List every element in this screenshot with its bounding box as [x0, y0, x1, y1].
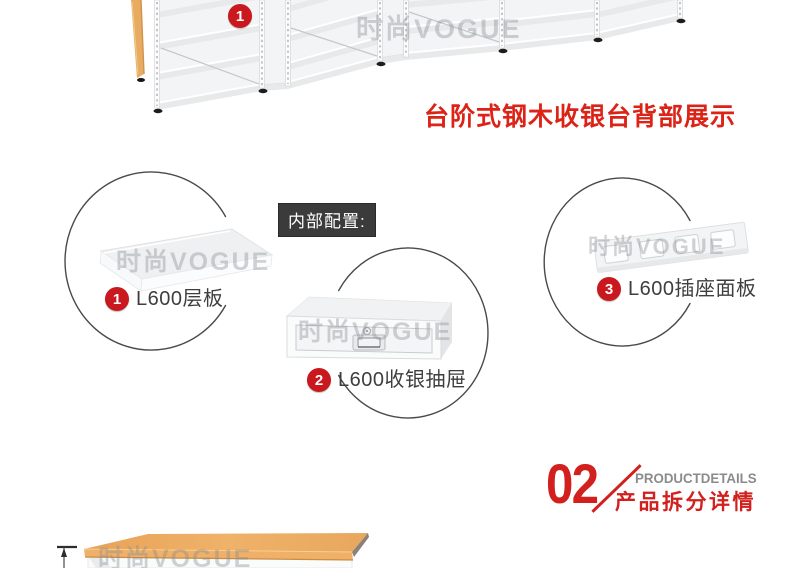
item-3-badge: 3: [597, 277, 621, 301]
product-detail-page: 时尚VOGUE 时尚VOGUE: [0, 0, 790, 568]
details-section-number: 02: [546, 460, 597, 508]
counter-partial: 时尚VOGUE: [57, 533, 369, 568]
details-section-title-en: PRODUCTDETAILS: [635, 470, 757, 486]
dimension-marker: [57, 547, 77, 568]
watermark-bottom: 时尚VOGUE: [98, 545, 252, 568]
top-caption: 台阶式钢木收银台背部展示: [424, 97, 736, 133]
upright: [677, 0, 686, 23]
watermark-panel: 时尚VOGUE: [588, 234, 725, 259]
item-1-label: L600层板: [136, 287, 224, 311]
wood-leg: [131, 0, 145, 82]
shelf-board-product: 时尚VOGUE: [100, 229, 272, 291]
item-1-badge: 1: [105, 287, 129, 311]
cash-drawer-product: 时尚VOGUE: [287, 297, 452, 359]
item-2-badge: 2: [307, 368, 331, 392]
details-section-header: 02 PRODUCTDETAILS 产品拆分详情: [540, 462, 770, 522]
watermark-drawer: 时尚VOGUE: [298, 318, 452, 346]
upright: [286, 0, 291, 86]
item-2-label: L600收银抽屉: [338, 368, 467, 392]
watermark-top: 时尚VOGUE: [356, 14, 522, 44]
marker-badge-1: 1: [228, 4, 252, 28]
item-3-label: L600插座面板: [628, 277, 757, 301]
details-section-title-zh: 产品拆分详情: [615, 486, 756, 516]
watermark-board: 时尚VOGUE: [116, 248, 270, 276]
config-header-label: 内部配置:: [278, 203, 376, 237]
